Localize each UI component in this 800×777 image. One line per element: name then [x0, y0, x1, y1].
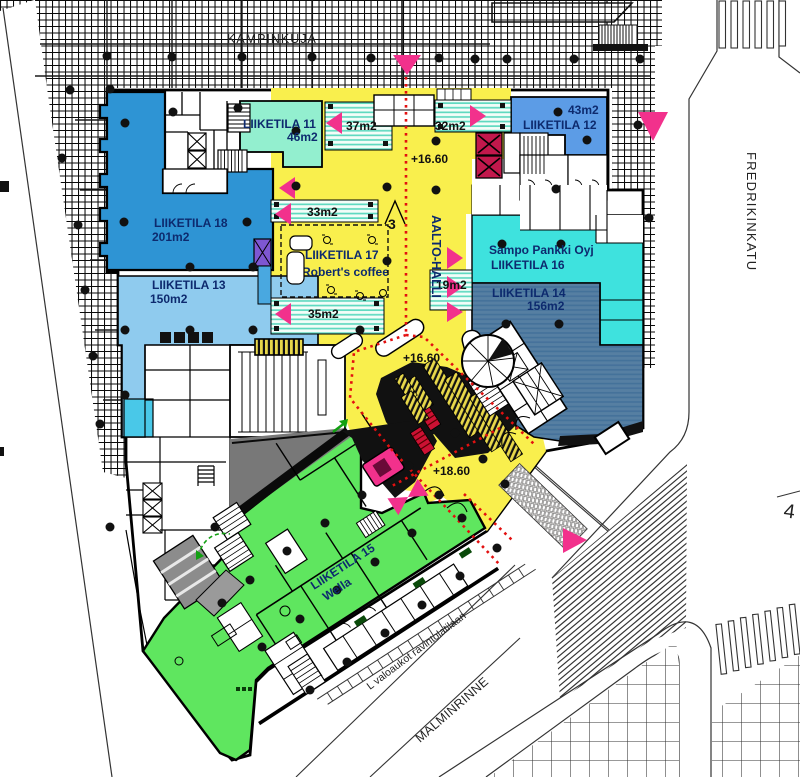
svg-text:LIIKETILA 13: LIIKETILA 13 — [152, 278, 226, 292]
svg-text:+16.60: +16.60 — [403, 351, 440, 365]
svg-text:AALTO-HALLI: AALTO-HALLI — [429, 215, 443, 298]
svg-text:3: 3 — [388, 216, 396, 232]
svg-text:43m2: 43m2 — [568, 103, 599, 117]
svg-text:+16.60: +16.60 — [411, 152, 448, 166]
svg-text:35m2: 35m2 — [308, 307, 339, 321]
svg-text:37m2: 37m2 — [346, 119, 377, 133]
svg-text:LIIKETILA 16: LIIKETILA 16 — [491, 258, 565, 272]
svg-text:FREDRIKINKATU: FREDRIKINKATU — [744, 152, 759, 271]
svg-text:Robert's coffee: Robert's coffee — [302, 265, 389, 279]
svg-text:Sampo Pankki Oyj: Sampo Pankki Oyj — [489, 243, 594, 257]
svg-text:156m2: 156m2 — [527, 299, 565, 313]
svg-text:33m2: 33m2 — [307, 205, 338, 219]
svg-text:201m2: 201m2 — [152, 230, 190, 244]
svg-text:LIIKETILA 12: LIIKETILA 12 — [523, 118, 597, 132]
svg-text:46m2: 46m2 — [287, 130, 318, 144]
svg-text:LIIKETILA 14: LIIKETILA 14 — [492, 286, 566, 300]
svg-text:+18.60: +18.60 — [433, 464, 470, 478]
svg-text:LIIKETILA 11: LIIKETILA 11 — [243, 117, 316, 131]
svg-text:LIIKETILA 17: LIIKETILA 17 — [305, 248, 379, 262]
svg-text:LIIKETILA 18: LIIKETILA 18 — [154, 216, 228, 230]
svg-text:32m2: 32m2 — [435, 119, 466, 133]
svg-text:KAMPINKUJA: KAMPINKUJA — [227, 32, 317, 46]
svg-text:150m2: 150m2 — [150, 292, 188, 306]
